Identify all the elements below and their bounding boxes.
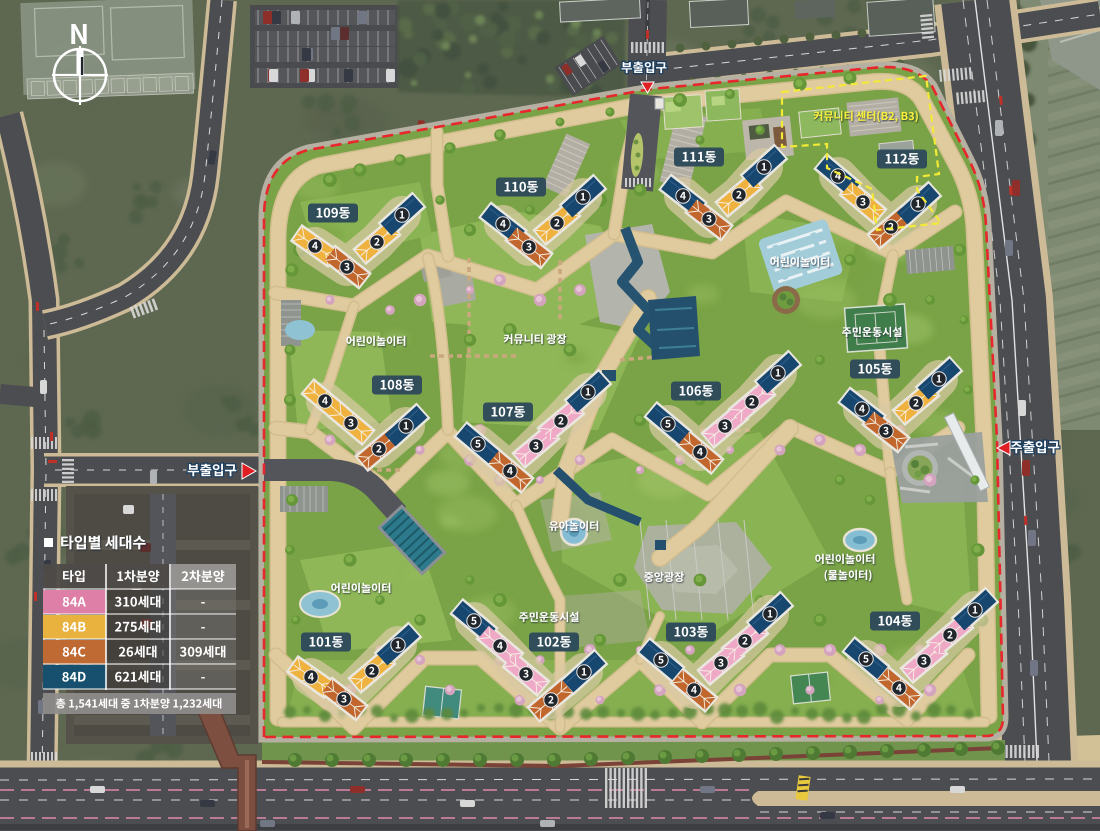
svg-text:1: 1 [580, 190, 586, 205]
svg-text:4: 4 [859, 402, 865, 417]
svg-text:4: 4 [691, 683, 697, 698]
svg-text:3: 3 [348, 416, 354, 431]
svg-text:4: 4 [308, 670, 314, 685]
svg-text:104동: 104동 [878, 611, 913, 630]
svg-text:2: 2 [369, 664, 375, 679]
svg-text:2: 2 [742, 634, 748, 649]
svg-text:102동: 102동 [537, 632, 572, 651]
svg-text:103동: 103동 [674, 622, 709, 641]
svg-text:3: 3 [883, 424, 889, 439]
svg-text:3: 3 [533, 439, 539, 454]
svg-text:유아놀이터: 유아놀이터 [549, 518, 600, 534]
svg-text:1: 1 [585, 385, 591, 400]
svg-text:3: 3 [718, 656, 724, 671]
svg-text:5: 5 [863, 652, 869, 667]
svg-text:2: 2 [947, 628, 953, 643]
svg-text:2: 2 [554, 216, 560, 231]
svg-text:1: 1 [399, 208, 405, 223]
svg-text:타입: 타입 [62, 566, 86, 585]
svg-text:310세대: 310세대 [115, 592, 162, 611]
svg-text:2: 2 [376, 442, 382, 457]
svg-text:3: 3 [344, 260, 350, 275]
svg-text:84A: 84A [62, 592, 86, 611]
svg-text:1: 1 [936, 372, 942, 387]
svg-text:3: 3 [526, 240, 532, 255]
svg-text:84D: 84D [62, 667, 87, 686]
svg-text:3: 3 [341, 692, 347, 707]
svg-text:2: 2 [558, 414, 564, 429]
svg-text:4: 4 [322, 394, 328, 409]
svg-text:4: 4 [697, 445, 703, 460]
svg-text:-: - [201, 592, 206, 611]
svg-text:어린이놀이터: 어린이놀이터 [346, 333, 407, 349]
svg-text:타입별 세대수: 타입별 세대수 [60, 532, 146, 553]
svg-text:4: 4 [835, 169, 841, 184]
svg-text:26세대: 26세대 [118, 642, 157, 661]
svg-text:107동: 107동 [491, 402, 526, 421]
svg-text:1: 1 [395, 638, 401, 653]
svg-text:어린이놀이터: 어린이놀이터 [331, 580, 392, 596]
svg-text:1차분양: 1차분양 [116, 566, 160, 585]
svg-text:커뮤니티 광장: 커뮤니티 광장 [503, 331, 566, 347]
svg-text:2: 2 [749, 395, 755, 410]
svg-text:중앙광장: 중앙광장 [644, 569, 684, 585]
svg-text:4: 4 [312, 239, 318, 254]
svg-text:4: 4 [497, 639, 503, 654]
svg-text:(물놀이터): (물놀이터) [824, 567, 873, 583]
svg-text:112동: 112동 [885, 149, 920, 168]
svg-text:275세대: 275세대 [115, 617, 162, 636]
svg-text:2: 2 [888, 220, 894, 235]
svg-text:1: 1 [761, 160, 767, 175]
svg-text:5: 5 [471, 614, 477, 629]
svg-text:105동: 105동 [858, 359, 893, 378]
svg-text:1: 1 [767, 607, 773, 622]
svg-text:주민운동시설: 주민운동시설 [842, 324, 903, 340]
svg-text:어린이놀이터: 어린이놀이터 [815, 551, 876, 567]
svg-text:N: N [69, 13, 89, 52]
svg-text:101동: 101동 [309, 632, 344, 651]
svg-text:3: 3 [860, 195, 866, 210]
svg-text:부출입구: 부출입구 [187, 459, 237, 479]
svg-text:2차분양: 2차분양 [181, 566, 225, 585]
svg-text:1: 1 [581, 665, 587, 680]
svg-text:106동: 106동 [679, 381, 714, 400]
svg-text:108동: 108동 [380, 375, 415, 394]
svg-text:111동: 111동 [682, 147, 717, 166]
svg-text:2: 2 [374, 235, 380, 250]
svg-text:4: 4 [680, 189, 686, 204]
svg-text:3: 3 [706, 212, 712, 227]
svg-text:2: 2 [736, 188, 742, 203]
svg-text:309세대: 309세대 [180, 642, 227, 661]
svg-text:84B: 84B [62, 617, 86, 636]
svg-text:5: 5 [475, 437, 481, 452]
svg-text:1: 1 [403, 419, 409, 434]
svg-text:3: 3 [921, 654, 927, 669]
svg-text:커뮤니티 센터(B2, B3): 커뮤니티 센터(B2, B3) [813, 108, 919, 124]
svg-text:621세대: 621세대 [115, 667, 162, 686]
svg-text:5: 5 [665, 417, 671, 432]
svg-text:2: 2 [913, 396, 919, 411]
svg-text:4: 4 [896, 681, 902, 696]
svg-text:4: 4 [500, 217, 506, 232]
svg-text:어린이놀이터: 어린이놀이터 [770, 254, 831, 270]
svg-text:-: - [201, 667, 206, 686]
svg-text:1: 1 [775, 366, 781, 381]
svg-text:부출입구: 부출입구 [621, 57, 667, 76]
svg-text:주민운동시설: 주민운동시설 [519, 609, 580, 625]
svg-text:1: 1 [915, 197, 921, 212]
svg-text:4: 4 [507, 464, 513, 479]
svg-text:3: 3 [722, 419, 728, 434]
svg-text:3: 3 [523, 667, 529, 682]
svg-text:110동: 110동 [504, 177, 539, 196]
svg-text:109동: 109동 [316, 203, 351, 222]
svg-text:84C: 84C [62, 642, 86, 661]
svg-text:주출입구: 주출입구 [1010, 436, 1060, 456]
svg-text:-: - [201, 617, 206, 636]
svg-text:1: 1 [972, 603, 978, 618]
svg-text:총 1,541세대 중 1차분양 1,232세대: 총 1,541세대 중 1차분양 1,232세대 [56, 696, 223, 712]
svg-text:5: 5 [658, 653, 664, 668]
svg-text:2: 2 [548, 693, 554, 708]
